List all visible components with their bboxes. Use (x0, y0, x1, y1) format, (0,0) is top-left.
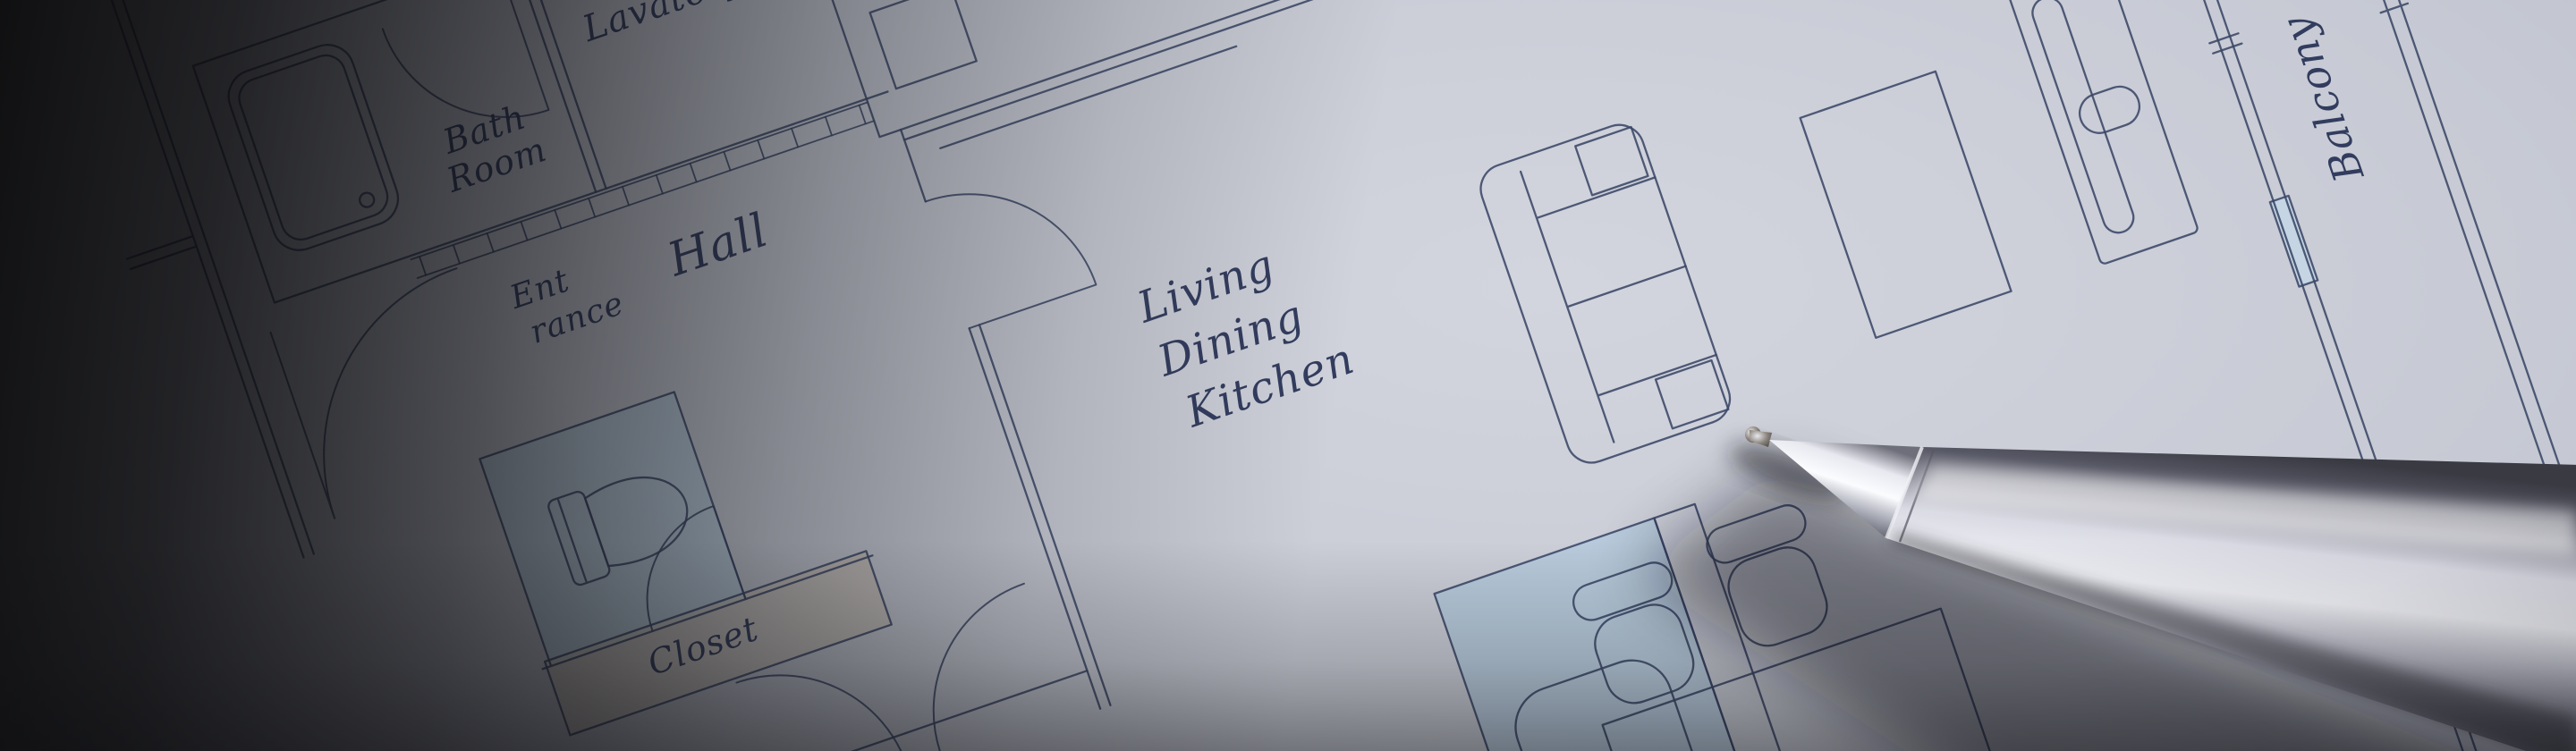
floor-plan-photo-svg: Lavatory Bath Room Ent rance Hall Living… (0, 0, 2576, 751)
side-table (1801, 72, 2012, 338)
entrance-door-arc (271, 268, 521, 519)
label-lavatory: Lavatory (577, 0, 750, 50)
sofa (1474, 118, 1737, 469)
closet-door-arc-right (897, 584, 1068, 751)
tv-board (2005, 0, 2199, 265)
label-balcony: Balcony (2272, 10, 2374, 189)
label-hall: Hall (661, 204, 775, 288)
pen-tip-cone (1750, 430, 1772, 447)
blueprint-photo-scene: Lavatory Bath Room Ent rance Hall Living… (0, 0, 2576, 751)
ldk-door-arc (926, 158, 1097, 329)
bathtub (222, 38, 405, 257)
